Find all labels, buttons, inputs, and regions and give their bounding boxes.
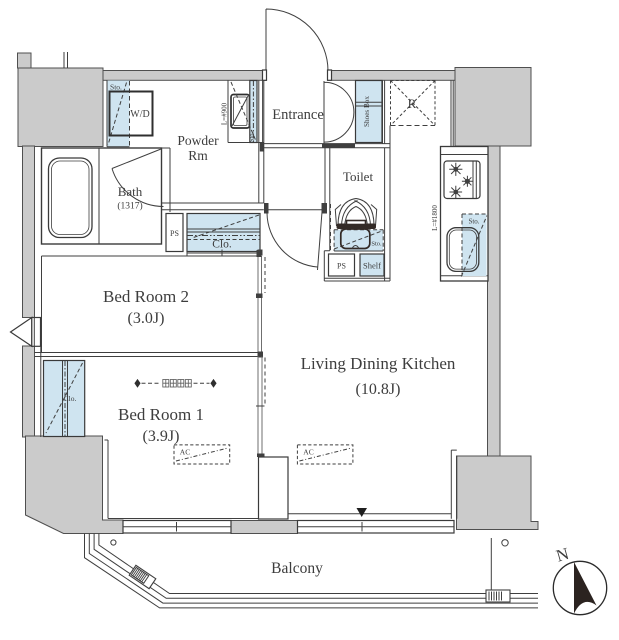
svg-text:Shoes Box: Shoes Box: [363, 96, 371, 127]
svg-text:Sto.: Sto.: [371, 241, 382, 248]
svg-text:Sto.: Sto.: [468, 218, 479, 226]
svg-text:PS: PS: [170, 229, 179, 238]
svg-text:Living Dining Kitchen: Living Dining Kitchen: [301, 354, 456, 373]
svg-text:W/D: W/D: [130, 109, 149, 120]
svg-text:Sto.: Sto.: [110, 83, 122, 92]
svg-text:Entrance: Entrance: [272, 107, 324, 123]
svg-text:Bed Room 1: Bed Room 1: [118, 405, 204, 424]
svg-text:R: R: [408, 96, 417, 111]
svg-text:L=#900: L=#900: [221, 102, 229, 125]
svg-text:Shelf: Shelf: [363, 261, 381, 271]
svg-text:(1317): (1317): [117, 201, 142, 212]
svg-text:(3.9J): (3.9J): [143, 428, 180, 445]
svg-text:AC: AC: [303, 448, 313, 457]
svg-text:Powder: Powder: [177, 133, 219, 148]
svg-text:Bed Room 2: Bed Room 2: [103, 287, 189, 306]
svg-text:Rm: Rm: [188, 148, 208, 163]
svg-text:Clo.: Clo.: [212, 239, 232, 251]
svg-text:N: N: [554, 544, 571, 566]
svg-text:AC: AC: [180, 448, 190, 457]
svg-text:PS: PS: [337, 262, 346, 271]
svg-text:L=#1800: L=#1800: [431, 205, 439, 231]
svg-text:(3.0J): (3.0J): [128, 310, 165, 327]
svg-text:Sto.: Sto.: [249, 131, 256, 142]
svg-text:Toilet: Toilet: [343, 169, 374, 184]
svg-text:Clo.: Clo.: [64, 394, 77, 403]
svg-text:Balcony: Balcony: [271, 560, 323, 577]
svg-text:Bath: Bath: [118, 184, 143, 199]
svg-text:(10.8J): (10.8J): [356, 381, 401, 398]
